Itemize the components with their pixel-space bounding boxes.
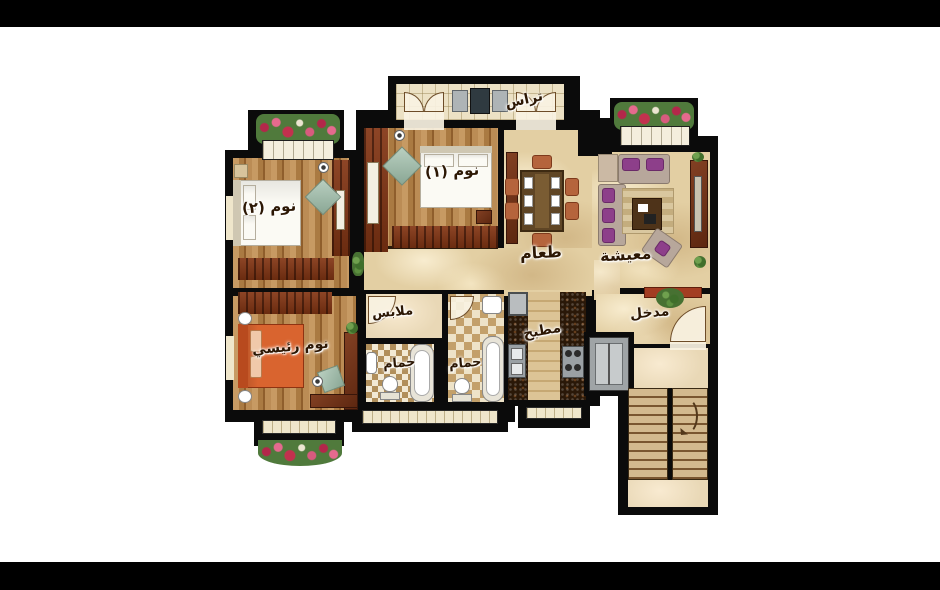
window-sill-bath-bay <box>362 410 498 424</box>
bathtub-2-inner <box>486 342 500 396</box>
wardrobe-bedroom-1-bottom <box>392 226 498 248</box>
label-dressing: ملابس <box>372 304 414 321</box>
bed-pillow <box>250 356 262 378</box>
coffee-table-object <box>644 214 656 224</box>
plate <box>524 213 533 225</box>
plate <box>524 177 533 189</box>
sink-basin <box>511 363 523 375</box>
ceiling-light-bedroom-2 <box>318 162 329 173</box>
plant-corridor <box>352 252 364 276</box>
stairs-landing <box>628 480 708 507</box>
dresser-bedroom-2 <box>234 164 248 178</box>
sideboard-dining <box>506 152 518 244</box>
fridge <box>508 292 528 316</box>
corridor <box>364 248 604 290</box>
sink-basin <box>511 348 523 360</box>
toilet-2-tank <box>452 394 472 402</box>
sofa-cushion <box>622 158 640 171</box>
wardrobe-master <box>238 292 332 314</box>
corner-table-living <box>598 154 618 182</box>
sofa-cushion <box>602 188 615 203</box>
sofa-cushion <box>602 208 615 223</box>
terrace-chair-left <box>452 90 468 112</box>
sofa-cushion <box>646 158 664 171</box>
wardrobe-mirror-door <box>367 162 379 224</box>
bed-pillow <box>243 215 256 240</box>
stove-burner <box>565 364 572 371</box>
plate <box>524 195 533 207</box>
stove-burner <box>574 364 581 371</box>
side-table-master <box>238 390 252 403</box>
coffee-table-paper <box>638 204 648 212</box>
planter-box-top-left <box>262 140 334 160</box>
toilet-1 <box>382 376 398 392</box>
wall-dining-living-pillar <box>578 118 612 156</box>
stove-burner <box>574 350 581 357</box>
label-bedroom-1: نوم (١) <box>425 163 480 181</box>
dining-chair <box>505 202 519 220</box>
label-dining: طعام <box>520 244 563 262</box>
planter-box-top-right <box>620 126 690 146</box>
sofa-cushion <box>602 228 615 243</box>
tv-screen <box>694 176 702 232</box>
terrace-table <box>470 88 490 114</box>
elevator-door-split <box>608 343 610 385</box>
bed-headboard <box>233 180 241 246</box>
flower-bed-master-bay <box>258 440 342 466</box>
desk-master-return <box>310 394 358 408</box>
window-sill-kitchen <box>526 407 582 419</box>
dining-chair <box>565 178 579 196</box>
terrace-door-gap-2 <box>516 112 556 130</box>
dining-chair <box>505 178 519 196</box>
sink-bathroom-1 <box>366 352 377 374</box>
letterbox-top <box>0 0 940 27</box>
label-bathroom-1: حمام <box>382 356 416 372</box>
label-bathroom-2: حمام <box>448 356 482 372</box>
label-bedroom-2: نوم (٢) <box>242 199 297 217</box>
plate <box>551 195 560 207</box>
nightstand-bedroom-1 <box>476 210 492 224</box>
ceiling-light-bedroom-1 <box>394 130 405 141</box>
plant-master <box>346 322 358 334</box>
plate <box>551 177 560 189</box>
stove-burner <box>565 350 572 357</box>
wardrobe-bedroom-2-bottom <box>238 258 334 280</box>
stairs-flight-left <box>628 388 668 480</box>
window-master-bedroom <box>226 336 234 380</box>
letterbox-bottom <box>0 562 940 590</box>
dining-chair <box>532 155 552 169</box>
toilet-2 <box>454 378 470 394</box>
plant-living-top <box>692 152 704 162</box>
bed-headboard <box>420 146 492 153</box>
floor-plan: تراس نوم (١) نوم (٢) طعام معيشة نوم رئيس… <box>0 0 940 590</box>
terrace-door-gap-1 <box>404 112 444 130</box>
label-entrance: مدخل <box>629 304 669 321</box>
sink-bathroom-2 <box>482 296 502 314</box>
bed-master-headboard <box>238 324 248 388</box>
side-table-master <box>238 312 252 325</box>
label-living: معيشة <box>600 246 652 265</box>
dining-table-runner <box>535 174 549 228</box>
stair-hall <box>628 348 708 388</box>
toilet-1-tank <box>380 392 400 400</box>
window-sill-master-bay <box>262 420 336 434</box>
plant-living-bottom <box>694 256 706 268</box>
bathtub-1-inner <box>414 350 430 396</box>
room-kitchen <box>528 292 560 400</box>
dining-chair <box>565 202 579 220</box>
ceiling-light-master <box>312 376 323 387</box>
plate <box>551 213 560 225</box>
